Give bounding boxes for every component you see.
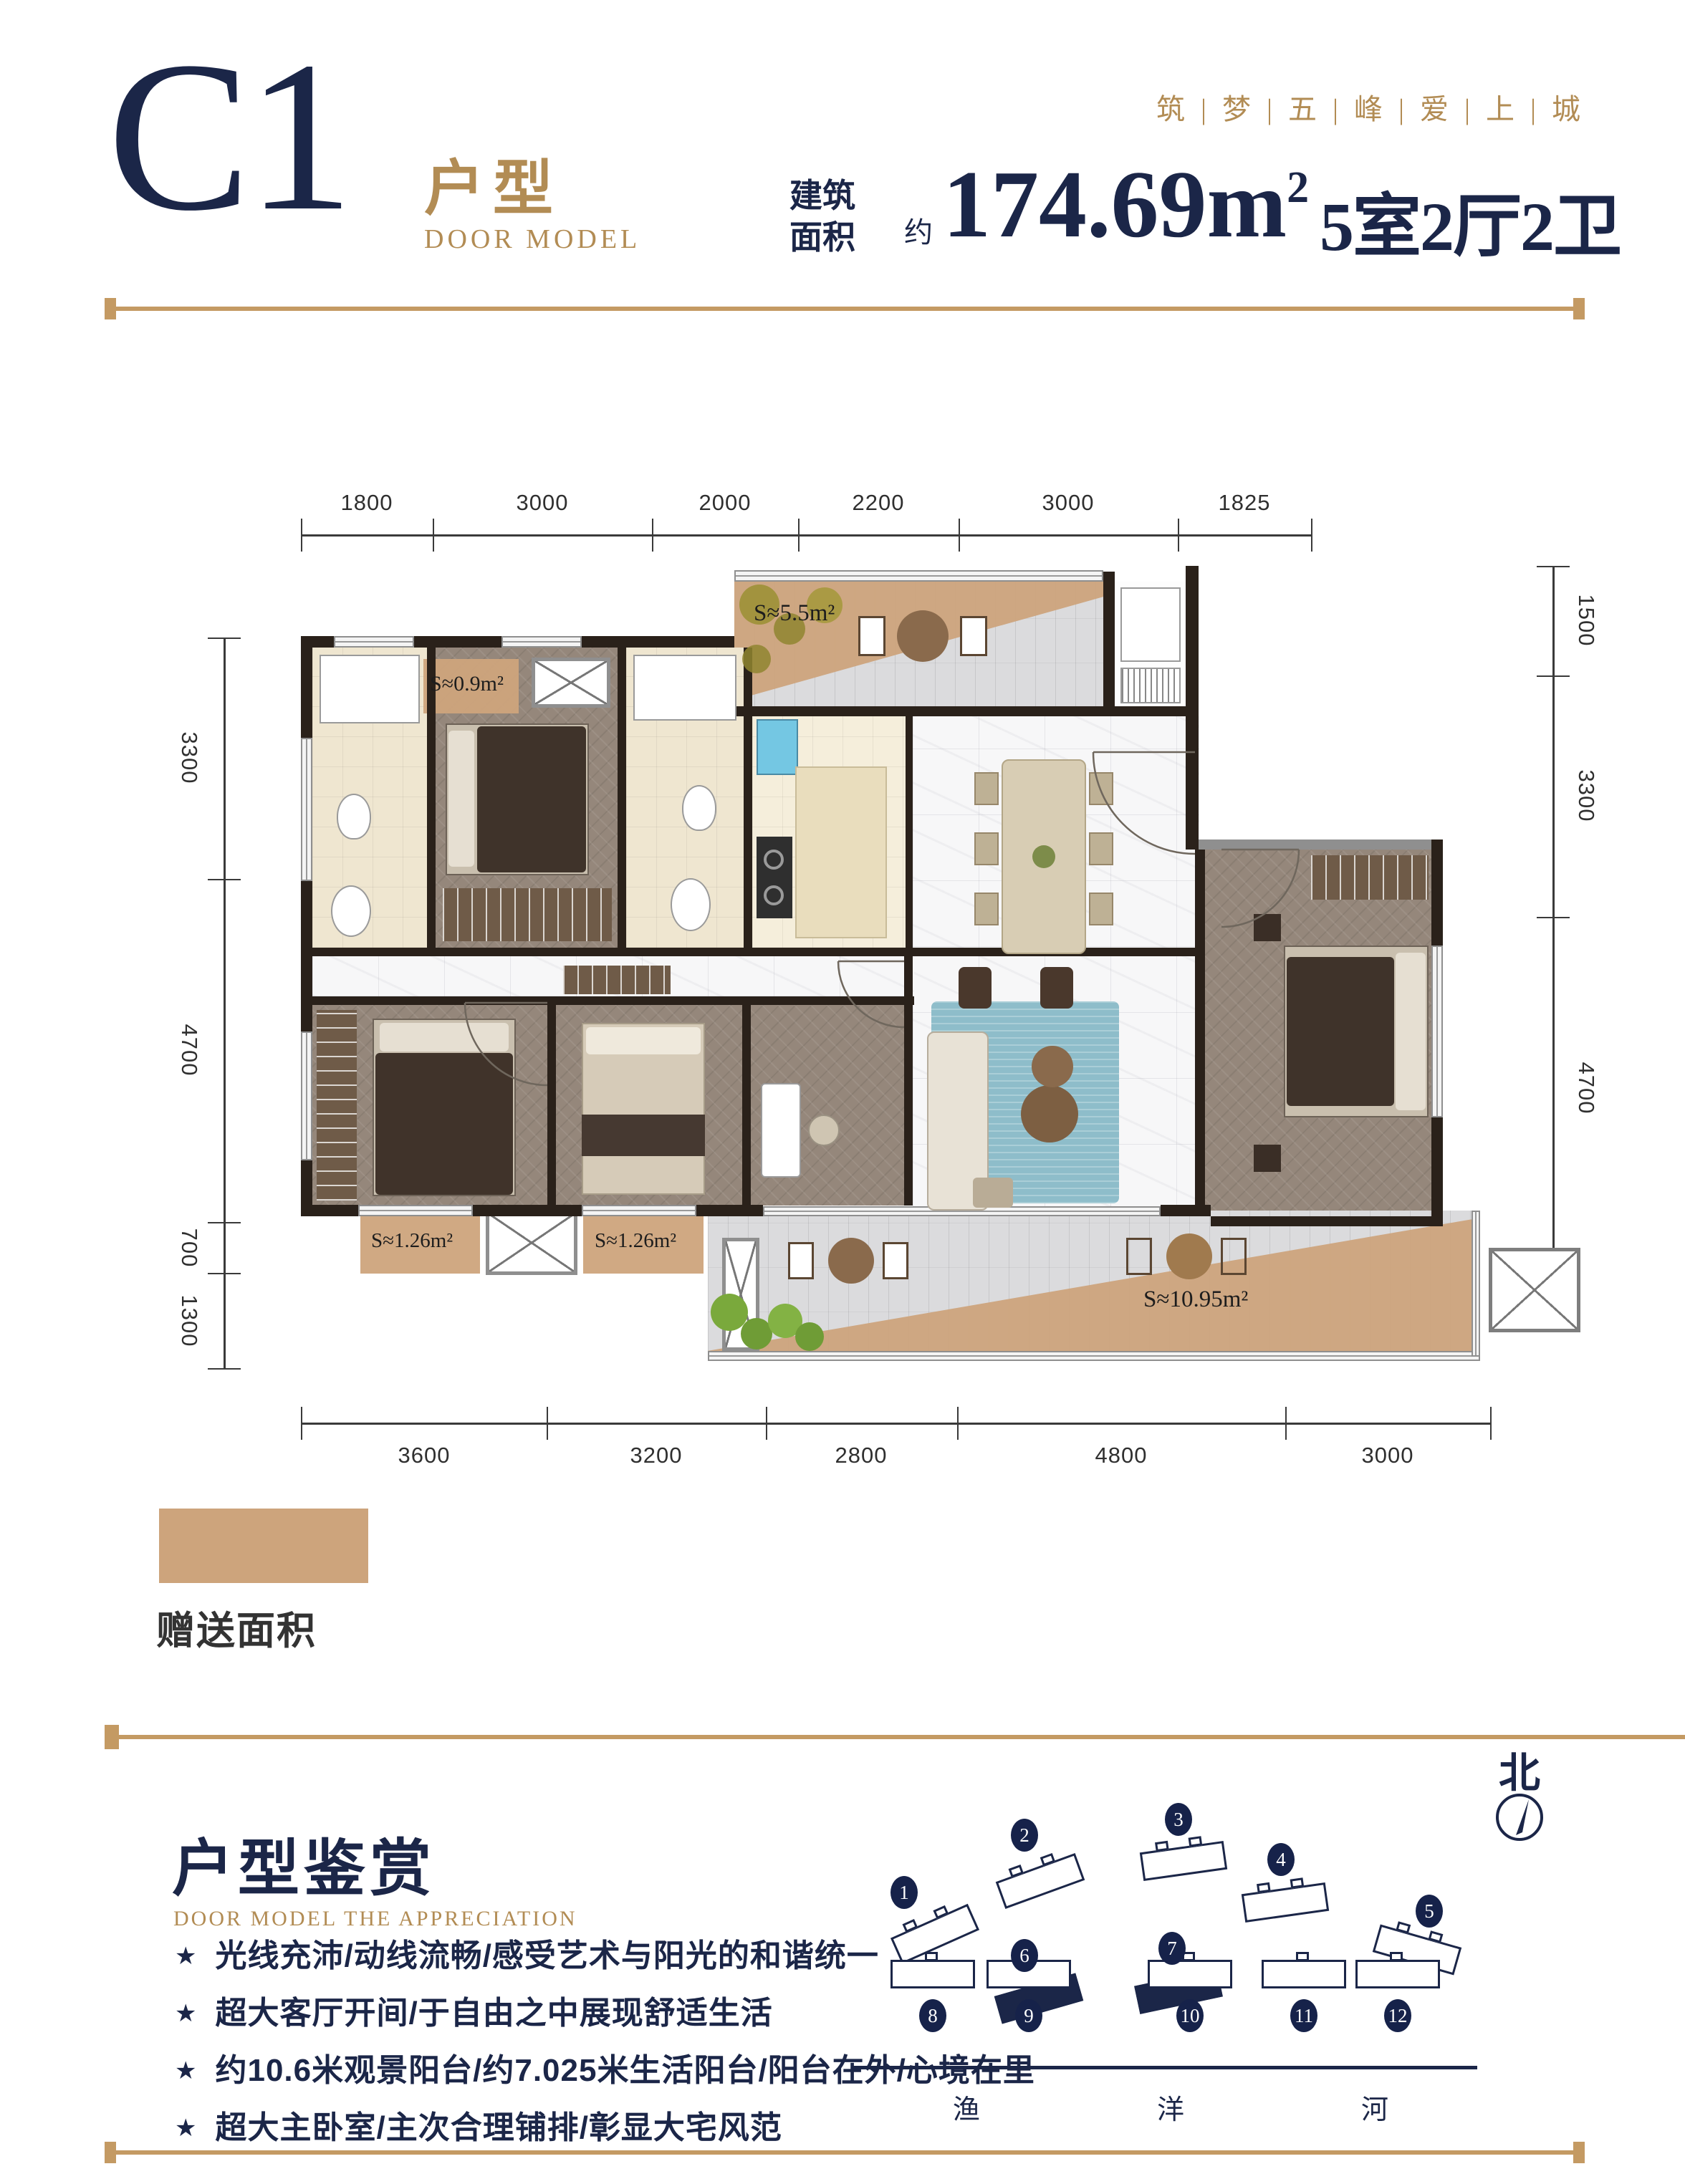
- dim-left-3: 1300: [176, 1295, 202, 1347]
- area-prefix: 建筑 面积: [789, 175, 855, 258]
- divider-mid-left-cap: [105, 1725, 119, 1749]
- building-badge-10: 10: [1176, 1999, 1204, 2032]
- balcony-table: [897, 610, 949, 662]
- divider-bottom-left-cap: [105, 2142, 116, 2163]
- divider-top-left-cap: [105, 298, 116, 319]
- feature-text: 超大客厅开间/于自由之中展现舒适生活: [215, 1996, 772, 2031]
- armchair: [1040, 967, 1073, 1009]
- pillows: [1396, 953, 1426, 1110]
- star-icon: ★: [175, 2110, 196, 2146]
- river-char-3: 河: [1361, 2087, 1388, 2127]
- divider-bottom: [116, 2150, 1573, 2155]
- dim-bottom-0: 3600: [398, 1443, 451, 1468]
- wall: [547, 1005, 556, 1206]
- tick: [957, 1407, 959, 1440]
- plant: [795, 1322, 824, 1351]
- star-icon: ★: [175, 2053, 196, 2089]
- bed-throw: [582, 1115, 705, 1156]
- wall: [742, 1005, 751, 1206]
- tick: [652, 519, 653, 552]
- window: [301, 738, 312, 881]
- wall: [1186, 566, 1199, 850]
- balcony-chair: [1221, 1238, 1247, 1275]
- balcony-table: [828, 1238, 874, 1284]
- plan-type-cn: 户型: [424, 140, 562, 227]
- building-badge-11: 11: [1290, 1999, 1317, 2032]
- balcony-chair: [858, 616, 885, 656]
- wall: [1161, 1205, 1211, 1216]
- dim-top-1: 3000: [517, 490, 569, 516]
- bed-duvet: [477, 726, 586, 872]
- coffee-table: [1021, 1085, 1078, 1142]
- toilet: [682, 785, 716, 831]
- star-icon: ★: [175, 1996, 196, 2031]
- tick: [1537, 566, 1570, 567]
- dim-bottom-1: 3200: [630, 1443, 683, 1468]
- window: [708, 1351, 1480, 1361]
- plan-type-en: DOOR MODEL: [424, 223, 640, 255]
- coffee-table-small: [1032, 1046, 1073, 1087]
- tick: [1178, 519, 1179, 552]
- tick: [1537, 675, 1570, 677]
- river-bank-line: [853, 2066, 1477, 2069]
- tick: [301, 519, 302, 552]
- divider-bottom-right-cap: [1573, 2142, 1585, 2163]
- area-label-bottom-balcony: S≈10.95m²: [1143, 1286, 1248, 1313]
- window: [358, 1205, 473, 1216]
- wall: [744, 648, 752, 948]
- building-badge-1: 1: [890, 1876, 918, 1909]
- building-3: [1140, 1841, 1227, 1881]
- dim-right-0: 1500: [1573, 595, 1599, 647]
- feature-item: ★ 超大主卧室/主次合理铺排/彰显大宅风范: [175, 2110, 1070, 2146]
- balcony-table: [1166, 1233, 1212, 1279]
- tick: [433, 519, 434, 552]
- brand-slogan: 筑 | 梦 | 五 | 峰 | 爱 | 上 | 城: [1156, 86, 1585, 128]
- plan-code: C1: [107, 29, 350, 244]
- area-prefix-line1: 建筑: [789, 175, 855, 216]
- legend-gift-label: 赠送面积: [156, 1599, 317, 1655]
- balcony-chair: [883, 1242, 908, 1279]
- building-4: [1242, 1882, 1329, 1923]
- tick: [208, 1368, 241, 1370]
- dim-bottom-3: 4800: [1095, 1443, 1148, 1468]
- pillows: [448, 731, 474, 867]
- ac-platform: [1489, 1248, 1580, 1332]
- balcony-chair: [960, 616, 987, 656]
- wardrobe: [1311, 855, 1429, 900]
- dining-chair: [974, 772, 999, 805]
- area-label-bay-left: S≈1.26m²: [371, 1229, 453, 1253]
- area-label-bay-mid: S≈1.26m²: [595, 1229, 676, 1253]
- balcony-chair: [788, 1242, 814, 1279]
- dimline-right: [1552, 566, 1555, 1260]
- dim-left-2: 700: [176, 1228, 202, 1268]
- pillows: [380, 1023, 509, 1052]
- fridge: [1120, 587, 1181, 662]
- wall: [1195, 850, 1205, 1216]
- building-badge-8: 8: [919, 1999, 946, 2032]
- dining-chair: [1089, 772, 1113, 805]
- tick: [547, 1407, 548, 1440]
- legend-gift-swatch: [159, 1509, 368, 1583]
- balcony-chair: [1126, 1238, 1152, 1275]
- dim-top-3: 2200: [853, 490, 905, 516]
- wall: [1211, 1216, 1443, 1226]
- wardrobe: [443, 888, 612, 941]
- dim-top-0: 1800: [341, 490, 393, 516]
- building-badge-12: 12: [1384, 1999, 1411, 2032]
- building-badge-9: 9: [1015, 1999, 1042, 2032]
- washbasin: [671, 878, 711, 931]
- building-badge-6: 6: [1011, 1939, 1038, 1972]
- floorplan-poster: C1 户型 DOOR MODEL 筑 | 梦 | 五 | 峰 | 爱 | 上 |…: [0, 0, 1685, 2184]
- window: [1431, 946, 1443, 1117]
- burner: [764, 850, 784, 870]
- dim-left-1: 4700: [176, 1024, 202, 1077]
- centerpiece: [1032, 845, 1055, 868]
- star-icon: ★: [175, 1938, 196, 1974]
- area-label-top-balcony: S≈5.5m²: [754, 600, 835, 627]
- area-value: 174.69m2: [943, 152, 1309, 257]
- tick: [1537, 917, 1570, 918]
- pillows: [586, 1027, 701, 1054]
- river-char-2: 洋: [1157, 2087, 1184, 2127]
- area-label-top-bay: S≈0.9m²: [430, 672, 504, 696]
- tick: [1311, 519, 1312, 552]
- dim-top-4: 3000: [1042, 490, 1095, 516]
- wardrobe: [563, 966, 671, 994]
- wall: [1103, 572, 1115, 708]
- dim-bottom-4: 3000: [1362, 1443, 1414, 1468]
- divider-top-right-cap: [1573, 298, 1585, 319]
- armchair: [959, 967, 992, 1009]
- dim-left-0: 3300: [176, 732, 202, 784]
- compass-icon: [1496, 1794, 1543, 1841]
- dim-top-2: 2000: [699, 490, 752, 516]
- bed-duvet: [1287, 957, 1394, 1106]
- dimline-left: [224, 638, 226, 1368]
- wall: [312, 996, 914, 1005]
- flue-top: [532, 658, 610, 708]
- dining-chair: [974, 893, 999, 925]
- river-char-1: 渔: [953, 2087, 980, 2127]
- wall: [720, 1205, 763, 1216]
- cabinet: [1120, 668, 1181, 703]
- area-approx: 约: [904, 209, 933, 251]
- dim-right-1: 3300: [1573, 770, 1599, 822]
- tick: [208, 1273, 241, 1274]
- divider-mid: [119, 1735, 1685, 1739]
- building-11: [1262, 1960, 1346, 1988]
- compass-needle: [1499, 1796, 1540, 1838]
- appreciation-title: 户型鉴赏: [172, 1818, 436, 1908]
- kitchen-sink: [757, 719, 798, 775]
- layout-summary: 5室2厅2卫: [1320, 170, 1621, 270]
- desk-chair: [808, 1115, 840, 1146]
- building-10: [1148, 1960, 1232, 1988]
- shower-tray: [633, 655, 736, 721]
- feature-text: 光线充沛/动线流畅/感受艺术与阳光的和谐统一: [215, 1938, 878, 1974]
- wall: [734, 706, 1199, 716]
- wall: [904, 956, 913, 1206]
- kitchen-counter: [795, 766, 887, 938]
- window: [734, 570, 1103, 582]
- window: [301, 1031, 312, 1160]
- building-badge-2: 2: [1011, 1819, 1038, 1852]
- area-prefix-line2: 面积: [789, 216, 855, 258]
- tick: [1285, 1407, 1287, 1440]
- tick: [959, 519, 960, 552]
- dimline-bottom: [301, 1423, 1490, 1425]
- wall: [618, 648, 626, 948]
- building-badge-7: 7: [1158, 1932, 1186, 1965]
- bed-duvet: [375, 1053, 513, 1195]
- plant: [742, 645, 771, 673]
- tick: [208, 1222, 241, 1223]
- building-badge-5: 5: [1416, 1895, 1443, 1928]
- dim-bottom-2: 2800: [835, 1443, 888, 1468]
- flue-bottom: [486, 1211, 577, 1275]
- tick: [301, 1407, 302, 1440]
- tick: [766, 1407, 767, 1440]
- area-sup: 2: [1287, 163, 1309, 212]
- wall-gray: [1199, 840, 1443, 850]
- divider-top: [116, 307, 1573, 311]
- area-number: 174.69m: [943, 151, 1287, 257]
- building-8: [890, 1960, 975, 1988]
- appreciation-subtitle: DOOR MODEL THE APPRECIATION: [173, 1907, 577, 1931]
- toilet: [337, 794, 371, 840]
- nightstand: [1254, 1145, 1281, 1172]
- window: [1472, 1211, 1480, 1357]
- dim-top-5: 1825: [1219, 490, 1271, 516]
- dimline-top: [301, 534, 1311, 537]
- wall: [906, 716, 913, 948]
- dim-right-2: 4700: [1573, 1062, 1599, 1115]
- feature-text: 超大主卧室/主次合理铺排/彰显大宅风范: [215, 2110, 782, 2146]
- window: [501, 636, 582, 648]
- feature-text: 约10.6米观景阳台/约7.025米生活阳台/阳台在外/心境在里: [215, 2053, 1034, 2089]
- dining-chair: [1089, 893, 1113, 925]
- tick: [208, 879, 241, 880]
- feature-item: ★ 约10.6米观景阳台/约7.025米生活阳台/阳台在外/心境在里: [175, 2053, 1070, 2089]
- ottoman: [973, 1178, 1013, 1208]
- north-label: 北: [1499, 1739, 1540, 1799]
- nightstand: [1254, 914, 1281, 941]
- tick: [1490, 1407, 1492, 1440]
- tick: [798, 519, 800, 552]
- tick: [208, 638, 241, 639]
- building-badge-4: 4: [1267, 1843, 1295, 1876]
- building-badge-3: 3: [1165, 1803, 1192, 1836]
- window: [582, 1205, 696, 1216]
- dining-chair: [1089, 832, 1113, 865]
- dining-chair: [974, 832, 999, 865]
- building-12: [1355, 1960, 1440, 1988]
- washbasin: [331, 885, 371, 937]
- wardrobe: [317, 1010, 357, 1201]
- burner: [764, 885, 784, 905]
- building-2: [996, 1853, 1085, 1909]
- window: [334, 636, 414, 648]
- shower-tray: [320, 655, 420, 723]
- desk: [761, 1083, 801, 1178]
